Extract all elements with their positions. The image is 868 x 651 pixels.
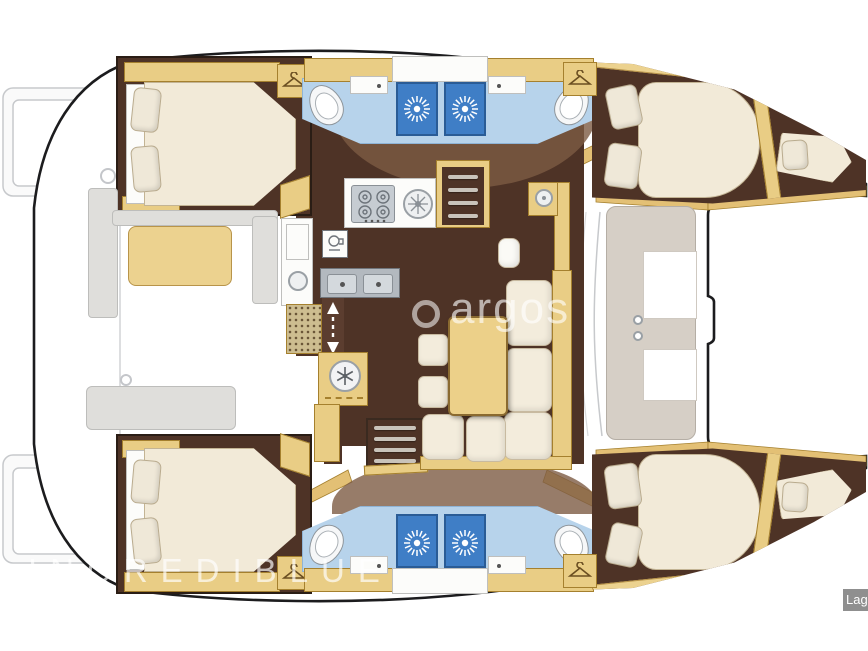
freezer-unit (318, 352, 368, 406)
starboard-bathrooms (302, 506, 596, 594)
doormat (286, 304, 322, 354)
shower-jet-icon (448, 526, 482, 560)
seat-cushion (498, 238, 520, 268)
double-bed (144, 82, 296, 206)
wet-bar-sink (288, 271, 308, 291)
pillow (130, 145, 162, 193)
shower-jet-icon (448, 92, 482, 126)
lounge-cutout (643, 349, 697, 401)
sofa-cushion (466, 416, 506, 462)
wardrobe (563, 554, 597, 588)
cockpit-bench-back (88, 188, 118, 318)
window-panel (392, 56, 488, 82)
shower-cubicle (396, 82, 438, 136)
front-lounge (606, 206, 696, 440)
salon-table (448, 316, 508, 416)
starboard-aft-cabin (116, 434, 312, 594)
sofa-cushion (506, 348, 552, 412)
pillow (781, 481, 809, 513)
stove (351, 185, 395, 223)
sink (488, 76, 526, 94)
galley-appliance-icon (325, 233, 345, 255)
pillow (604, 83, 644, 131)
sliding-door (322, 298, 344, 358)
cup-holder (633, 315, 643, 325)
stove-burner-icon (352, 186, 396, 224)
freezer-circle (329, 360, 361, 392)
sink (488, 556, 526, 574)
drain (340, 282, 345, 287)
wet-bar (281, 218, 313, 306)
shower-cubicle (444, 82, 486, 136)
pillow (781, 139, 809, 171)
toilet-lid (310, 88, 343, 123)
snowflake-icon (333, 364, 357, 388)
stairs-to-port-hull (436, 160, 490, 228)
port-bathrooms (302, 56, 596, 144)
cabin-shelf (280, 175, 310, 219)
sofa-cushion (504, 412, 552, 460)
photo-credit-label: Lag (843, 589, 868, 611)
sink (350, 556, 388, 574)
sofa-cushion (422, 414, 464, 460)
pillow (130, 459, 162, 505)
fwd-seat (528, 182, 558, 216)
deck-fitting (100, 168, 116, 184)
window-panel (392, 568, 488, 594)
stool (418, 376, 448, 408)
console-icon (535, 189, 553, 207)
faucet (377, 564, 381, 568)
pillow (603, 142, 643, 190)
faucet (377, 84, 381, 88)
stool (418, 334, 448, 366)
hanger-icon (567, 70, 593, 88)
cabin-shelf (280, 433, 310, 477)
sink-bowl (327, 274, 357, 294)
wet-bar-top (286, 224, 309, 260)
freezer-seam (325, 397, 363, 399)
galley-appliance (322, 230, 348, 258)
shower-jet-icon (400, 92, 434, 126)
cockpit-aft-bench (86, 386, 236, 430)
drain (376, 282, 381, 287)
round-sink (403, 189, 433, 219)
sofa-cushion (506, 280, 552, 346)
wardrobe (563, 62, 597, 96)
stairs-to-starboard-hull (366, 418, 424, 468)
faucet (497, 564, 501, 568)
cockpit-bench-side (252, 216, 278, 304)
galley-counter (344, 178, 436, 228)
deck-fitting (120, 374, 132, 386)
cabin-shelf (124, 62, 280, 82)
companionway-arrow-icon (326, 302, 340, 354)
double-bed (144, 448, 296, 572)
stair-treads (442, 167, 484, 225)
double-bed (638, 82, 760, 198)
shower-cubicle (444, 514, 486, 568)
shower-jet-icon (400, 526, 434, 560)
double-bed (638, 454, 760, 570)
cockpit-seat-cushion (128, 226, 232, 286)
pillow (604, 521, 644, 569)
sink (350, 76, 388, 94)
double-sink (320, 268, 400, 298)
pillow (130, 87, 162, 134)
lounge-cutout (643, 251, 697, 319)
cup-holder (633, 331, 643, 341)
faucet (497, 84, 501, 88)
galley-cabinet (314, 404, 340, 462)
pillow (603, 462, 643, 510)
cabin-shelf (124, 572, 280, 592)
console-dot (542, 196, 546, 200)
sink-bowl (363, 274, 393, 294)
hanger-icon (567, 562, 593, 580)
floor-white-patch-2 (342, 446, 368, 464)
yacht-floor-plan: argos INCREDIBLUE Lag (0, 0, 868, 651)
port-aft-cabin (116, 56, 312, 216)
sofa-back (552, 270, 572, 466)
photo-credit-text: Lag (843, 589, 868, 611)
round-sink-icon (405, 191, 431, 217)
pillow (130, 517, 163, 566)
shower-cubicle (396, 514, 438, 568)
